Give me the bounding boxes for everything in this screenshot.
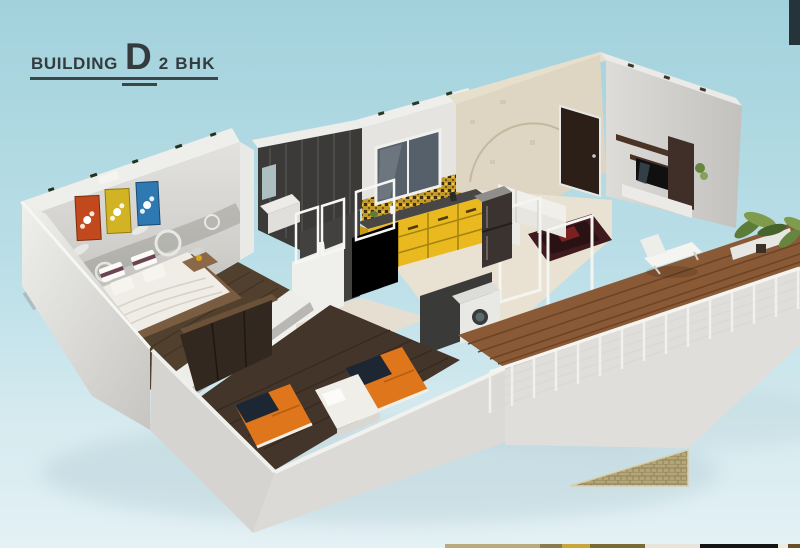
plant-icon xyxy=(695,163,705,173)
bath-mirror xyxy=(262,164,276,200)
building-letter: D xyxy=(125,40,152,73)
table-lamp xyxy=(196,255,202,261)
entrance-door xyxy=(560,106,600,196)
page-title: BUILDING D 2 BHK xyxy=(31,40,216,74)
corner-block xyxy=(789,0,800,45)
washer-glass xyxy=(476,313,485,322)
counter-plant xyxy=(370,211,378,217)
photo-strip xyxy=(445,544,800,548)
title-letter-underline xyxy=(122,83,157,86)
art-panel-orange xyxy=(75,195,101,240)
plant-icon xyxy=(700,172,708,180)
art-panel-yellow xyxy=(105,188,131,233)
plant-pot xyxy=(756,244,766,253)
art-panel-blue xyxy=(136,181,160,225)
tall-cabinet xyxy=(668,136,694,210)
floor-plan-render xyxy=(0,0,800,548)
bedroom-wall-pillar xyxy=(240,142,254,260)
unit-type-label: 2 BHK xyxy=(159,54,216,74)
building-label: BUILDING xyxy=(31,54,118,74)
title-underline xyxy=(30,77,218,80)
door-handle xyxy=(592,154,596,158)
screenshot: BUILDING D 2 BHK xyxy=(0,0,800,548)
